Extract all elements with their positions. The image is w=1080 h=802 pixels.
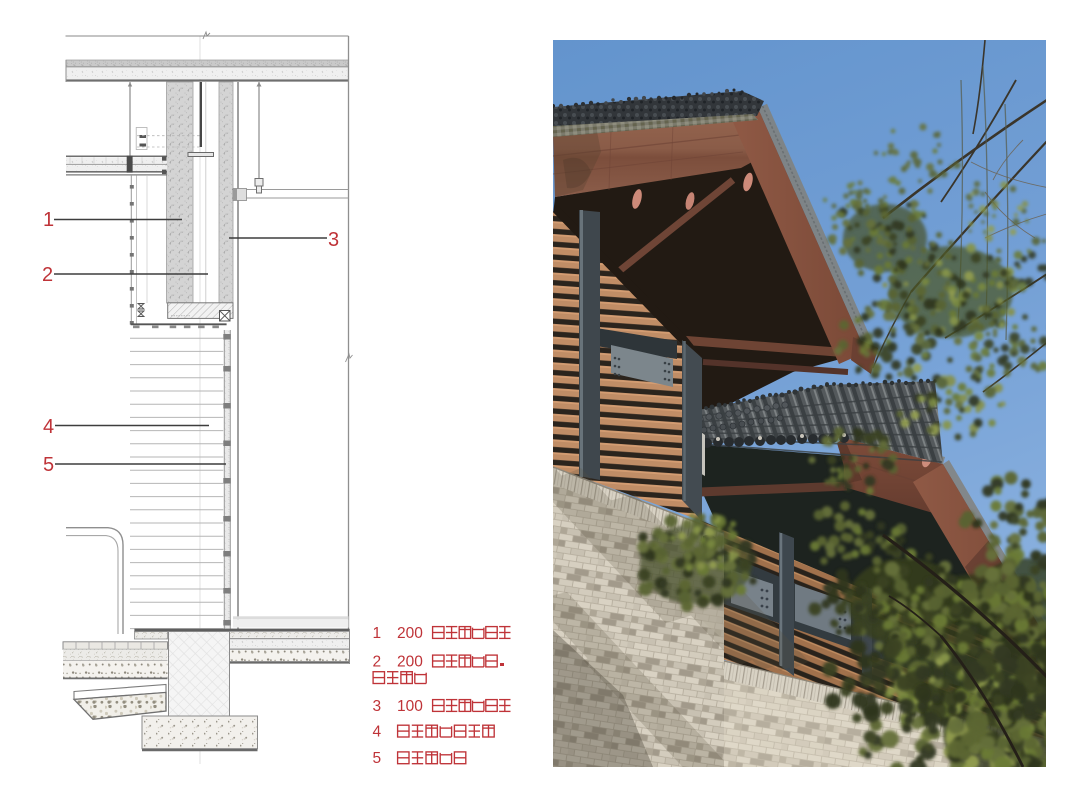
svg-text:1: 1 xyxy=(373,625,382,642)
svg-text:1: 1 xyxy=(43,209,54,231)
svg-text:200: 200 xyxy=(397,625,423,642)
svg-text:200: 200 xyxy=(397,654,423,671)
svg-text:4: 4 xyxy=(373,724,382,741)
svg-text:5: 5 xyxy=(43,454,54,476)
svg-text:100: 100 xyxy=(397,698,423,715)
svg-text:4: 4 xyxy=(43,416,54,438)
svg-text:2: 2 xyxy=(42,264,53,286)
svg-text:3: 3 xyxy=(373,698,382,715)
svg-text:3: 3 xyxy=(328,229,339,251)
svg-text:2: 2 xyxy=(373,654,382,671)
svg-text:5: 5 xyxy=(373,750,382,767)
